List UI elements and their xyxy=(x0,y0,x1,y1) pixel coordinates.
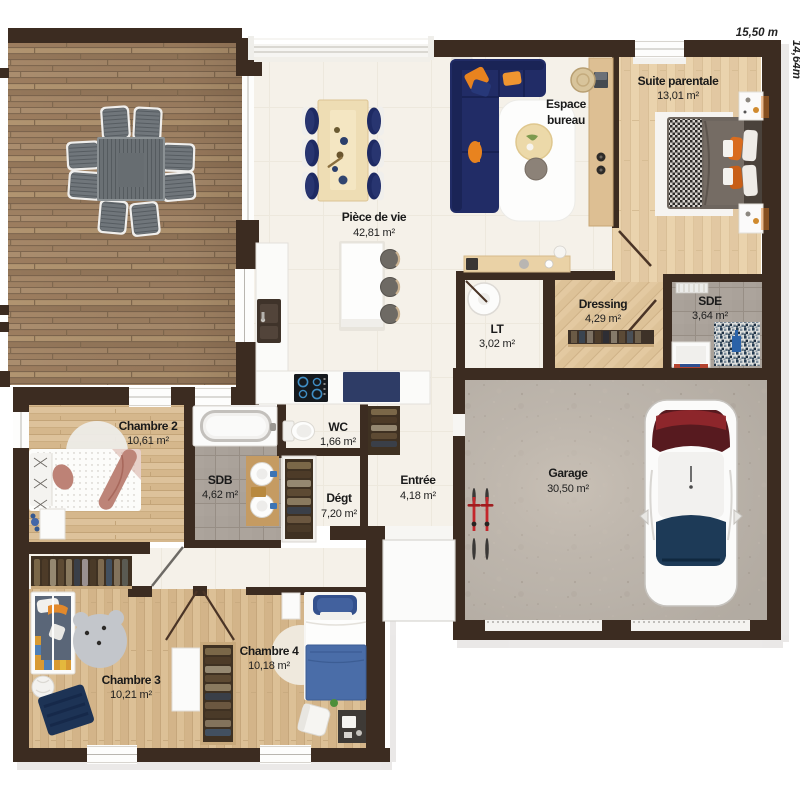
svg-text:WC: WC xyxy=(328,420,348,434)
svg-text:SDB: SDB xyxy=(208,473,233,487)
svg-text:10,21 m²: 10,21 m² xyxy=(110,689,152,701)
svg-text:1,66 m²: 1,66 m² xyxy=(320,436,356,448)
svg-text:Dégt: Dégt xyxy=(326,491,352,505)
svg-text:3,02 m²: 3,02 m² xyxy=(479,338,515,350)
svg-text:14,64m: 14,64m xyxy=(790,40,800,79)
svg-text:Chambre 4: Chambre 4 xyxy=(240,644,300,658)
svg-text:4,18 m²: 4,18 m² xyxy=(400,490,436,502)
svg-text:Entrée: Entrée xyxy=(400,473,436,487)
svg-text:7,20 m²: 7,20 m² xyxy=(321,508,357,520)
svg-text:SDE: SDE xyxy=(698,294,722,308)
svg-text:LT: LT xyxy=(490,322,504,336)
svg-text:Suite parentale: Suite parentale xyxy=(638,74,719,88)
svg-text:bureau: bureau xyxy=(547,113,585,127)
svg-text:Espace: Espace xyxy=(546,97,587,111)
svg-text:10,18 m²: 10,18 m² xyxy=(248,660,290,672)
svg-text:Chambre 3: Chambre 3 xyxy=(102,673,162,687)
svg-text:13,01 m²: 13,01 m² xyxy=(657,90,699,102)
svg-text:Chambre 2: Chambre 2 xyxy=(119,419,179,433)
svg-text:Dressing: Dressing xyxy=(579,297,628,311)
svg-text:10,61 m²: 10,61 m² xyxy=(127,435,169,447)
svg-text:4,62 m²: 4,62 m² xyxy=(202,489,238,501)
svg-text:15,50 m: 15,50 m xyxy=(736,27,778,39)
svg-text:Pièce de vie: Pièce de vie xyxy=(342,210,407,224)
svg-text:42,81 m²: 42,81 m² xyxy=(353,227,395,239)
svg-text:4,29 m²: 4,29 m² xyxy=(585,313,621,325)
svg-text:Garage: Garage xyxy=(548,466,588,480)
svg-text:30,50 m²: 30,50 m² xyxy=(547,483,589,495)
svg-text:3,64 m²: 3,64 m² xyxy=(692,310,728,322)
